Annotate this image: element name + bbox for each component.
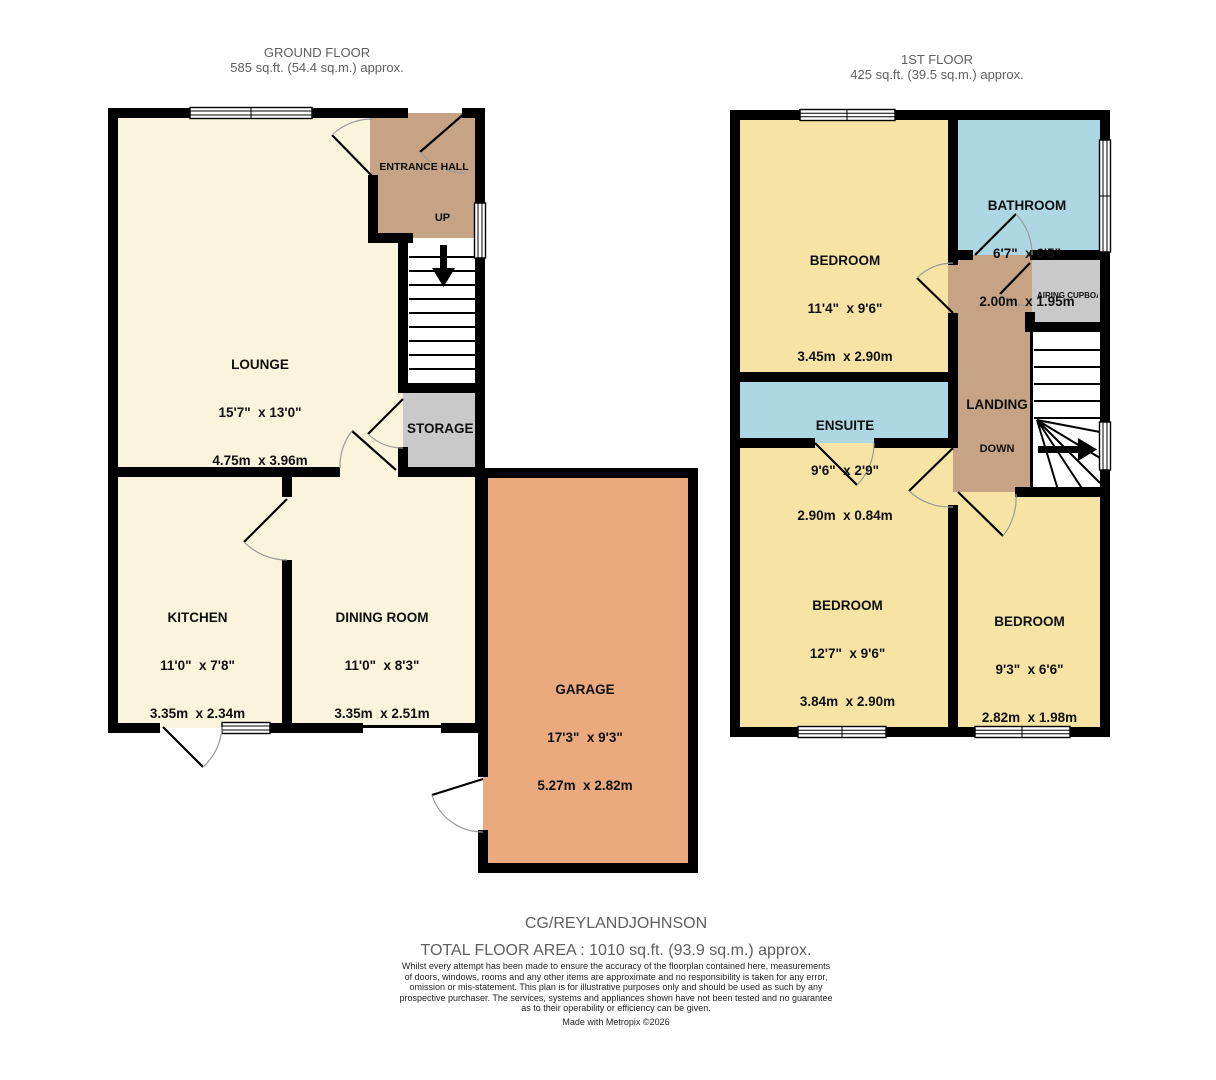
bedroom-2-label: BEDROOM 12'7" x 9'6" 3.84m x 2.90m — [735, 566, 960, 742]
ensuite-name: ENSUITE — [735, 418, 955, 433]
disclaimer: Whilst every attempt has been made to en… — [308, 961, 924, 1028]
disclaimer-line: of doors, windows, rooms and any other i… — [308, 972, 924, 983]
metropix-credit: Made with Metropix ©2026 — [308, 1017, 924, 1028]
bedroom-3-metric: 2.82m x 1.98m — [952, 710, 1107, 726]
lounge-label: LOUNGE 15'7" x 13'0" 4.75m x 3.96m — [110, 325, 410, 501]
disclaimer-line: prospective purchaser. The services, sys… — [308, 993, 924, 1004]
garage-name: GARAGE — [485, 682, 685, 698]
kitchen-label: KITCHEN 11'0" x 7'8" 3.35m x 2.34m — [110, 578, 285, 754]
bathroom-label: BATHROOM 6'7" x 6'5" 2.00m x 1.95m — [952, 166, 1102, 342]
bedroom-1-metric: 3.45m x 2.90m — [735, 349, 955, 365]
bedroom-3-label: BEDROOM 9'3" x 6'6" 2.82m x 1.98m — [952, 582, 1107, 758]
lounge-name: LOUNGE — [110, 357, 410, 373]
garage-label: GARAGE 17'3" x 9'3" 5.27m x 2.82m — [485, 650, 685, 826]
stairs-up-label: UP — [420, 212, 465, 224]
ensuite-label: ENSUITE 9'6" x 2'9" 2.90m x 0.84m — [735, 388, 955, 553]
dining-room-metric: 3.35m x 2.51m — [292, 706, 472, 722]
dining-room-label: DINING ROOM 11'0" x 8'3" 3.35m x 2.51m — [292, 578, 472, 754]
bedroom-1-imperial: 11'4" x 9'6" — [735, 301, 955, 317]
lounge-metric: 4.75m x 3.96m — [110, 453, 410, 469]
dining-room-imperial: 11'0" x 8'3" — [292, 658, 472, 674]
bedroom-2-metric: 3.84m x 2.90m — [735, 694, 960, 710]
storage-label: STORAGE — [407, 421, 473, 436]
ensuite-metric: 2.90m x 0.84m — [735, 508, 955, 523]
bedroom-3-imperial: 9'3" x 6'6" — [952, 662, 1107, 678]
ensuite-imperial: 9'6" x 2'9" — [735, 463, 955, 478]
total-floor-area: TOTAL FLOOR AREA : 1010 sq.ft. (93.9 sq.… — [308, 942, 924, 960]
bedroom-1-label: BEDROOM 11'4" x 9'6" 3.45m x 2.90m — [735, 221, 955, 397]
first-floor-subtitle: 425 sq.ft. (39.5 sq.m.) approx. — [787, 67, 1087, 82]
landing-label: LANDING — [947, 397, 1047, 412]
bedroom-1-name: BEDROOM — [735, 253, 955, 269]
reference-code: CG/REYLANDJOHNSON — [308, 915, 924, 933]
dining-room-name: DINING ROOM — [292, 610, 472, 626]
disclaimer-line: Whilst every attempt has been made to en… — [308, 961, 924, 972]
first-floor-title-line: 1ST FLOOR — [787, 52, 1087, 67]
disclaimer-line: omission or mis-statement. This plan is … — [308, 982, 924, 993]
garage-metric: 5.27m x 2.82m — [485, 778, 685, 794]
kitchen-metric: 3.35m x 2.34m — [110, 706, 285, 722]
ground-floor-title-line: GROUND FLOOR — [167, 45, 467, 60]
garage-imperial: 17'3" x 9'3" — [485, 730, 685, 746]
ground-floor-subtitle: 585 sq.ft. (54.4 sq.m.) approx. — [167, 60, 467, 75]
ground-floor-title: GROUND FLOOR 585 sq.ft. (54.4 sq.m.) app… — [167, 45, 467, 75]
bedroom-2-imperial: 12'7" x 9'6" — [735, 646, 960, 662]
first-floor-title: 1ST FLOOR 425 sq.ft. (39.5 sq.m.) approx… — [787, 52, 1087, 82]
kitchen-imperial: 11'0" x 7'8" — [110, 658, 285, 674]
bedroom-2-name: BEDROOM — [735, 598, 960, 614]
floorplan-page: GROUND FLOOR 585 sq.ft. (54.4 sq.m.) app… — [0, 0, 1216, 1080]
bathroom-name: BATHROOM — [952, 198, 1102, 214]
stairs-down-label: DOWN — [963, 443, 1031, 455]
disclaimer-line: as to their operability or efficiency ca… — [308, 1003, 924, 1014]
entrance-hall-label: ENTRANCE HALL — [370, 161, 478, 173]
airing-cupboard-label: AIRING CUPBOARD — [1037, 291, 1098, 300]
bathroom-imperial: 6'7" x 6'5" — [952, 246, 1102, 262]
lounge-imperial: 15'7" x 13'0" — [110, 405, 410, 421]
bedroom-3-name: BEDROOM — [952, 614, 1107, 630]
kitchen-name: KITCHEN — [110, 610, 285, 626]
